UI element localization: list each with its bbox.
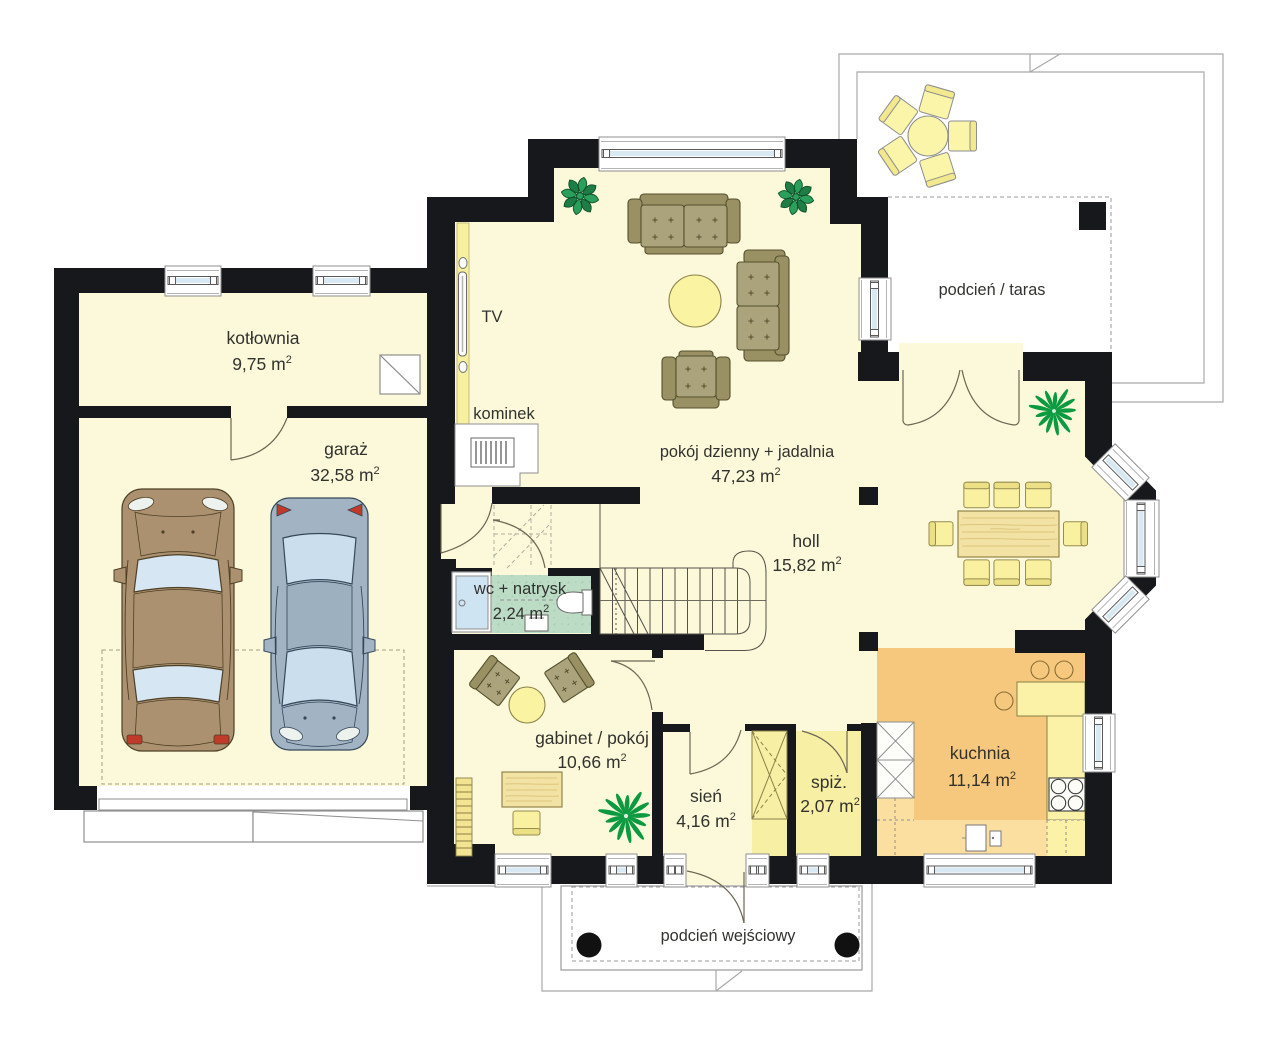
svg-text:holl: holl	[792, 531, 819, 551]
svg-text:4,16 m2: 4,16 m2	[676, 811, 736, 831]
svg-text:sień: sień	[690, 786, 722, 806]
svg-text:gabinet / pokój: gabinet / pokój	[535, 728, 649, 748]
svg-text:TV: TV	[481, 308, 502, 326]
svg-text:podcień wejściowy: podcień wejściowy	[661, 927, 797, 945]
svg-text:podcień / taras: podcień / taras	[939, 281, 1046, 299]
svg-text:spiż.: spiż.	[811, 772, 847, 792]
svg-text:kuchnia: kuchnia	[950, 743, 1011, 763]
svg-text:2,24 m2: 2,24 m2	[493, 603, 550, 623]
svg-text:11,14 m2: 11,14 m2	[948, 770, 1016, 790]
svg-text:kominek: kominek	[473, 405, 535, 423]
svg-text:47,23 m2: 47,23 m2	[711, 466, 780, 486]
svg-text:wc + natrysk: wc + natrysk	[473, 580, 567, 598]
svg-text:15,82 m2: 15,82 m2	[772, 555, 841, 575]
svg-text:garaż: garaż	[324, 439, 368, 459]
svg-text:kotłownia: kotłownia	[227, 328, 300, 348]
svg-text:2,07 m2: 2,07 m2	[800, 796, 860, 816]
svg-text:9,75 m2: 9,75 m2	[232, 354, 292, 374]
svg-text:10,66 m2: 10,66 m2	[557, 752, 626, 772]
svg-text:32,58 m2: 32,58 m2	[310, 465, 379, 485]
svg-text:pokój dzienny + jadalnia: pokój dzienny + jadalnia	[660, 443, 835, 461]
